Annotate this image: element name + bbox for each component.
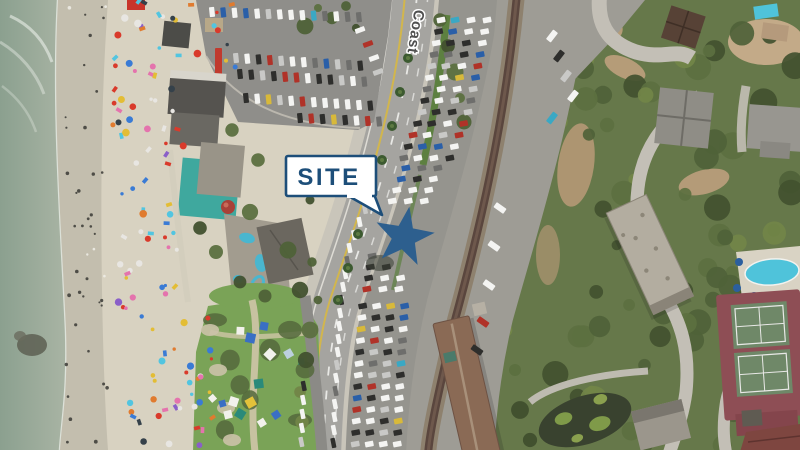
- aerial-map: Coast SITE: [0, 0, 800, 450]
- aerial-map-exhibit: Coast SITE: [0, 0, 800, 450]
- site-callout-label: SITE: [297, 164, 360, 191]
- rock-outcrop-small: [14, 331, 26, 341]
- tree-shadow: [366, 255, 394, 271]
- site-callout-joint: [347, 192, 372, 198]
